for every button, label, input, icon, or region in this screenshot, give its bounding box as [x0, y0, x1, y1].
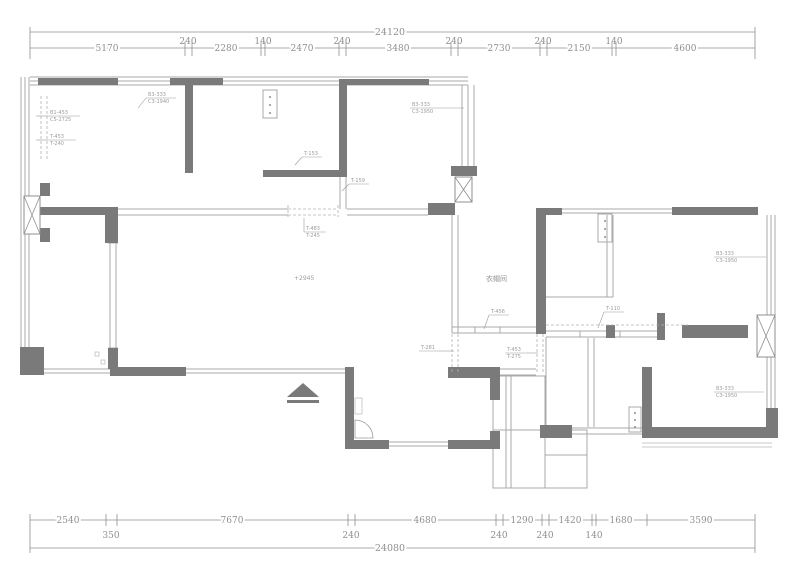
dim-top-total: 24120: [375, 27, 405, 38]
annotation-a4-line1: B3-333: [412, 102, 430, 108]
dim-top-seg-4600: 4600: [674, 44, 697, 54]
floor-plan-page: 24120 5170 240 2280 140 2470 240 3480 24…: [0, 0, 800, 579]
dim-bot-seg-350: 350: [102, 531, 119, 541]
cabinet-symbol-2: [598, 214, 612, 242]
dim-bot-seg-2540: 2540: [57, 516, 80, 526]
dim-bot-seg-240c: 240: [536, 531, 553, 541]
annotation-a15-line1: B3-333: [716, 386, 734, 392]
cabinet-symbol-1: [263, 90, 277, 118]
annotation-a3-line1: B3-333: [148, 92, 166, 98]
annotation-a11: T-110: [605, 306, 620, 312]
dim-top-seg-240d: 240: [534, 37, 551, 47]
annotation-a5: T-153: [303, 151, 318, 157]
annotation-a10-line1: B3-333: [716, 251, 734, 257]
dim-bot-seg-240b: 240: [490, 531, 507, 541]
window-bands: [21, 77, 775, 488]
dim-top-seg-240b: 240: [333, 37, 350, 47]
dim-top-seg-5170: 5170: [96, 44, 119, 54]
annotation-a1-line2: C5-2725: [50, 117, 71, 123]
annotation-a6: T-159: [350, 178, 365, 184]
dim-bot-seg-1680: 1680: [610, 516, 633, 526]
annotation-a7-line1: T-483: [305, 226, 320, 232]
level-mark: +2945: [294, 275, 314, 282]
floor-plan-svg: 24120 5170 240 2280 140 2470 240 3480 24…: [0, 0, 800, 579]
dim-bot-seg-7670: 7670: [221, 516, 244, 526]
annotation-a2-line1: T-453: [49, 134, 64, 140]
walls: [20, 78, 778, 449]
annotations: B1-453 C5-2725 T-453 T-240 B3-333 C3-194…: [36, 92, 766, 399]
corner-basin-symbol: [355, 420, 373, 438]
symbols: [24, 90, 775, 438]
column-xbox-right: [757, 315, 775, 357]
dim-top-seg-240c: 240: [445, 37, 462, 47]
dim-top-seg-2470: 2470: [291, 44, 314, 54]
hinge-symbol-1: [95, 352, 99, 356]
bottom-dimension-chain: 2540 7670 4680 1290 1420 1680 3590 350 2…: [30, 514, 755, 554]
column-xbox-left: [24, 196, 40, 234]
dim-bot-total: 24080: [375, 543, 405, 554]
entrance-arrow-icon: [287, 383, 319, 403]
dim-bot-seg-3590: 3590: [690, 516, 713, 526]
dim-top-seg-240a: 240: [179, 37, 196, 47]
annotation-a15-line2: C3-1950: [716, 393, 737, 399]
annotation-a14-line1: T-453: [506, 347, 521, 353]
annotation-a2-line2: T-240: [49, 141, 64, 147]
dim-bot-seg-140: 140: [585, 531, 602, 541]
dim-bot-seg-1420: 1420: [559, 516, 582, 526]
fixture-symbol: [355, 398, 362, 414]
dim-top-seg-3480: 3480: [387, 44, 410, 54]
dim-top-seg-2280: 2280: [215, 44, 238, 54]
annotation-a13: T-281: [420, 345, 435, 351]
dim-bot-seg-1290: 1290: [511, 516, 534, 526]
column-xbox-center: [455, 177, 472, 202]
top-dimension-chain: 24120 5170 240 2280 140 2470 240 3480 24…: [30, 27, 755, 59]
dim-bot-seg-4680: 4680: [414, 516, 437, 526]
annotation-a1-line1: B1-453: [50, 110, 68, 116]
annotation-a4-line2: C3-1950: [412, 109, 433, 115]
dim-top-seg-2150: 2150: [568, 44, 591, 54]
annotation-a3-line2: C3-1940: [148, 99, 169, 105]
annotation-a12: T-456: [490, 309, 505, 315]
dim-bot-seg-240a: 240: [342, 531, 359, 541]
annotation-a10-line2: C3-1950: [716, 258, 737, 264]
annotation-a14-line2: T-275: [506, 354, 521, 360]
room-label-cloakroom: 衣帽间: [486, 274, 507, 283]
dim-top-seg-140b: 140: [605, 37, 622, 47]
hinge-symbol-2: [101, 360, 105, 364]
annotation-a7-line2: T-245: [305, 233, 320, 239]
dim-top-seg-140a: 140: [254, 37, 271, 47]
dim-top-seg-2730: 2730: [488, 44, 511, 54]
